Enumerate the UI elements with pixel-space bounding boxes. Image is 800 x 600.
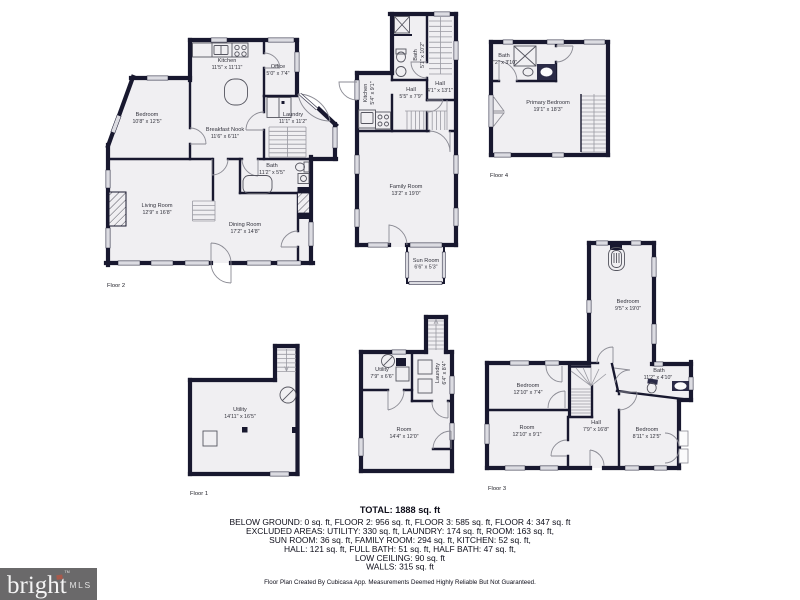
svg-text:12'9" x 16'8": 12'9" x 16'8" [142,210,171,216]
svg-text:MLS: MLS [70,580,92,590]
svg-text:Bath: Bath [498,53,510,59]
svg-text:Bedroom: Bedroom [617,299,640,305]
svg-text:TM: TM [65,570,70,574]
svg-text:Laundry: Laundry [435,363,441,383]
svg-text:Room: Room [520,425,535,431]
svg-text:14'4" x 12'0": 14'4" x 12'0" [389,434,418,440]
svg-text:12'10" x 7'4": 12'10" x 7'4" [513,390,542,396]
svg-text:Dining Room: Dining Room [229,222,262,228]
svg-text:Utility: Utility [233,407,247,413]
svg-text:5'0" x 7'4": 5'0" x 7'4" [266,71,289,77]
svg-text:7'9" x 6'6": 7'9" x 6'6" [370,374,393,380]
svg-text:12'10" x 9'1": 12'10" x 9'1" [512,432,541,438]
svg-text:Hall: Hall [591,420,601,426]
svg-text:6'6" x 5'3": 6'6" x 5'3" [414,265,437,271]
svg-text:Laundry: Laundry [283,112,303,118]
svg-text:Bath: Bath [266,163,278,169]
svg-text:19'1" x 18'3": 19'1" x 18'3" [533,107,562,113]
svg-text:Family Room: Family Room [390,184,423,190]
svg-text:7'9" x 16'8": 7'9" x 16'8" [583,427,609,433]
svg-text:5'5" x 7'9": 5'5" x 7'9" [399,94,422,100]
svg-text:11'2" x 4'10": 11'2" x 4'10" [644,375,673,381]
svg-text:11'6" x 6'11": 11'6" x 6'11" [211,134,239,140]
svg-text:Kitchen: Kitchen [218,58,237,64]
svg-text:Floor 4: Floor 4 [490,173,509,179]
svg-text:Office: Office [271,64,286,70]
svg-text:Bedroom: Bedroom [136,112,159,118]
svg-text:Floor 1: Floor 1 [190,491,208,497]
svg-text:8'11" x 12'5": 8'11" x 12'5" [633,434,662,440]
svg-text:TOTAL: 1888 sq. ft: TOTAL: 1888 sq. ft [360,505,440,515]
svg-text:Floor Plan Created By Cubicasa: Floor Plan Created By Cubicasa App. Meas… [264,579,536,586]
svg-text:14'11" x 16'5": 14'11" x 16'5" [224,414,256,420]
svg-text:11'2" x 5'5": 11'2" x 5'5" [259,170,285,176]
svg-text:Kitchen: Kitchen [363,84,369,103]
svg-text:Primary Bedroom: Primary Bedroom [526,100,570,106]
svg-text:13'2" x 19'0": 13'2" x 19'0" [391,191,420,197]
svg-text:5'4" x 9'1": 5'4" x 9'1" [370,81,376,104]
svg-text:6'4" x 8'4": 6'4" x 8'4" [442,361,448,384]
svg-text:Room: Room [397,427,412,433]
svg-text:Sun Room: Sun Room [413,258,440,264]
svg-text:17'2" x 14'8": 17'2" x 14'8" [230,229,259,235]
svg-text:Bath: Bath [653,368,665,374]
svg-text:Hall: Hall [435,81,445,87]
svg-text:Floor 2: Floor 2 [107,283,125,289]
svg-text:Bath: Bath [413,49,419,61]
svg-text:10'8" x 12'5": 10'8" x 12'5" [132,119,161,125]
svg-text:WALLS: 315 sq. ft: WALLS: 315 sq. ft [366,562,434,572]
svg-text:9'5" x 19'0": 9'5" x 19'0" [615,306,641,312]
svg-text:5'1" x 10'2": 5'1" x 10'2" [420,42,426,68]
svg-text:Hall: Hall [406,87,416,93]
svg-text:7'2" x 3'10": 7'2" x 3'10" [491,60,517,66]
svg-text:Utility: Utility [375,367,389,373]
svg-text:11'5" x 11'11": 11'5" x 11'11" [212,65,243,71]
svg-text:Bedroom: Bedroom [517,383,540,389]
svg-text:4'1" x 13'1": 4'1" x 13'1" [427,88,453,94]
svg-text:11'1" x 11'2": 11'1" x 11'2" [279,119,307,125]
svg-text:Bedroom: Bedroom [636,427,659,433]
svg-text:Floor 3: Floor 3 [488,486,506,492]
svg-text:Breakfast Nook: Breakfast Nook [206,127,244,133]
svg-text:Living Room: Living Room [141,203,172,209]
